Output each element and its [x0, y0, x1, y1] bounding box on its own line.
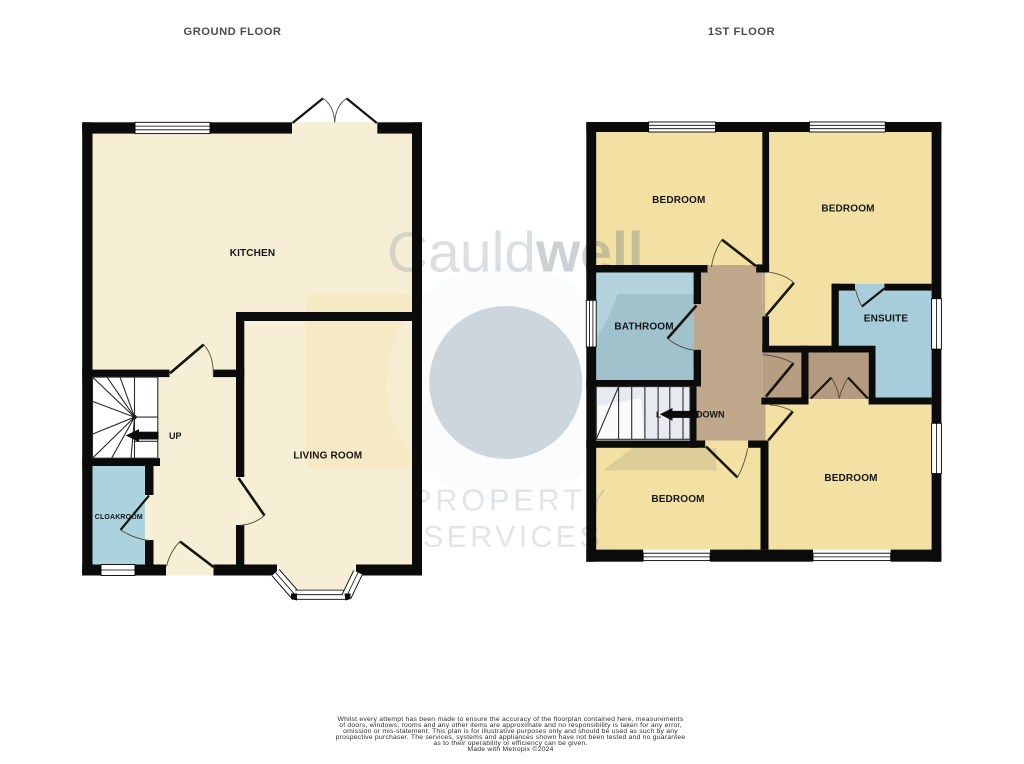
svg-text:BEDROOM: BEDROOM [652, 195, 705, 206]
svg-text:BEDROOM: BEDROOM [651, 494, 704, 505]
svg-text:BEDROOM: BEDROOM [821, 204, 874, 215]
svg-text:BATHROOM: BATHROOM [614, 322, 673, 333]
svg-text:1ST FLOOR: 1ST FLOOR [708, 26, 775, 38]
svg-text:SERVICES: SERVICES [423, 520, 603, 554]
svg-text:PROPERTY: PROPERTY [411, 483, 610, 517]
svg-text:DOWN: DOWN [696, 410, 725, 420]
svg-text:ENSUITE: ENSUITE [864, 314, 909, 325]
svg-text:BEDROOM: BEDROOM [824, 473, 877, 484]
svg-text:LIVING ROOM: LIVING ROOM [293, 451, 362, 462]
svg-text:Cauldwell: Cauldwell [387, 221, 644, 285]
svg-text:CLOAKROOM: CLOAKROOM [95, 514, 143, 521]
svg-text:Made with Metropix ©2024: Made with Metropix ©2024 [467, 745, 553, 753]
svg-text:KITCHEN: KITCHEN [230, 248, 276, 259]
svg-text:L: L [656, 411, 661, 420]
svg-text:UP: UP [169, 431, 182, 441]
svg-text:GROUND FLOOR: GROUND FLOOR [184, 26, 282, 38]
